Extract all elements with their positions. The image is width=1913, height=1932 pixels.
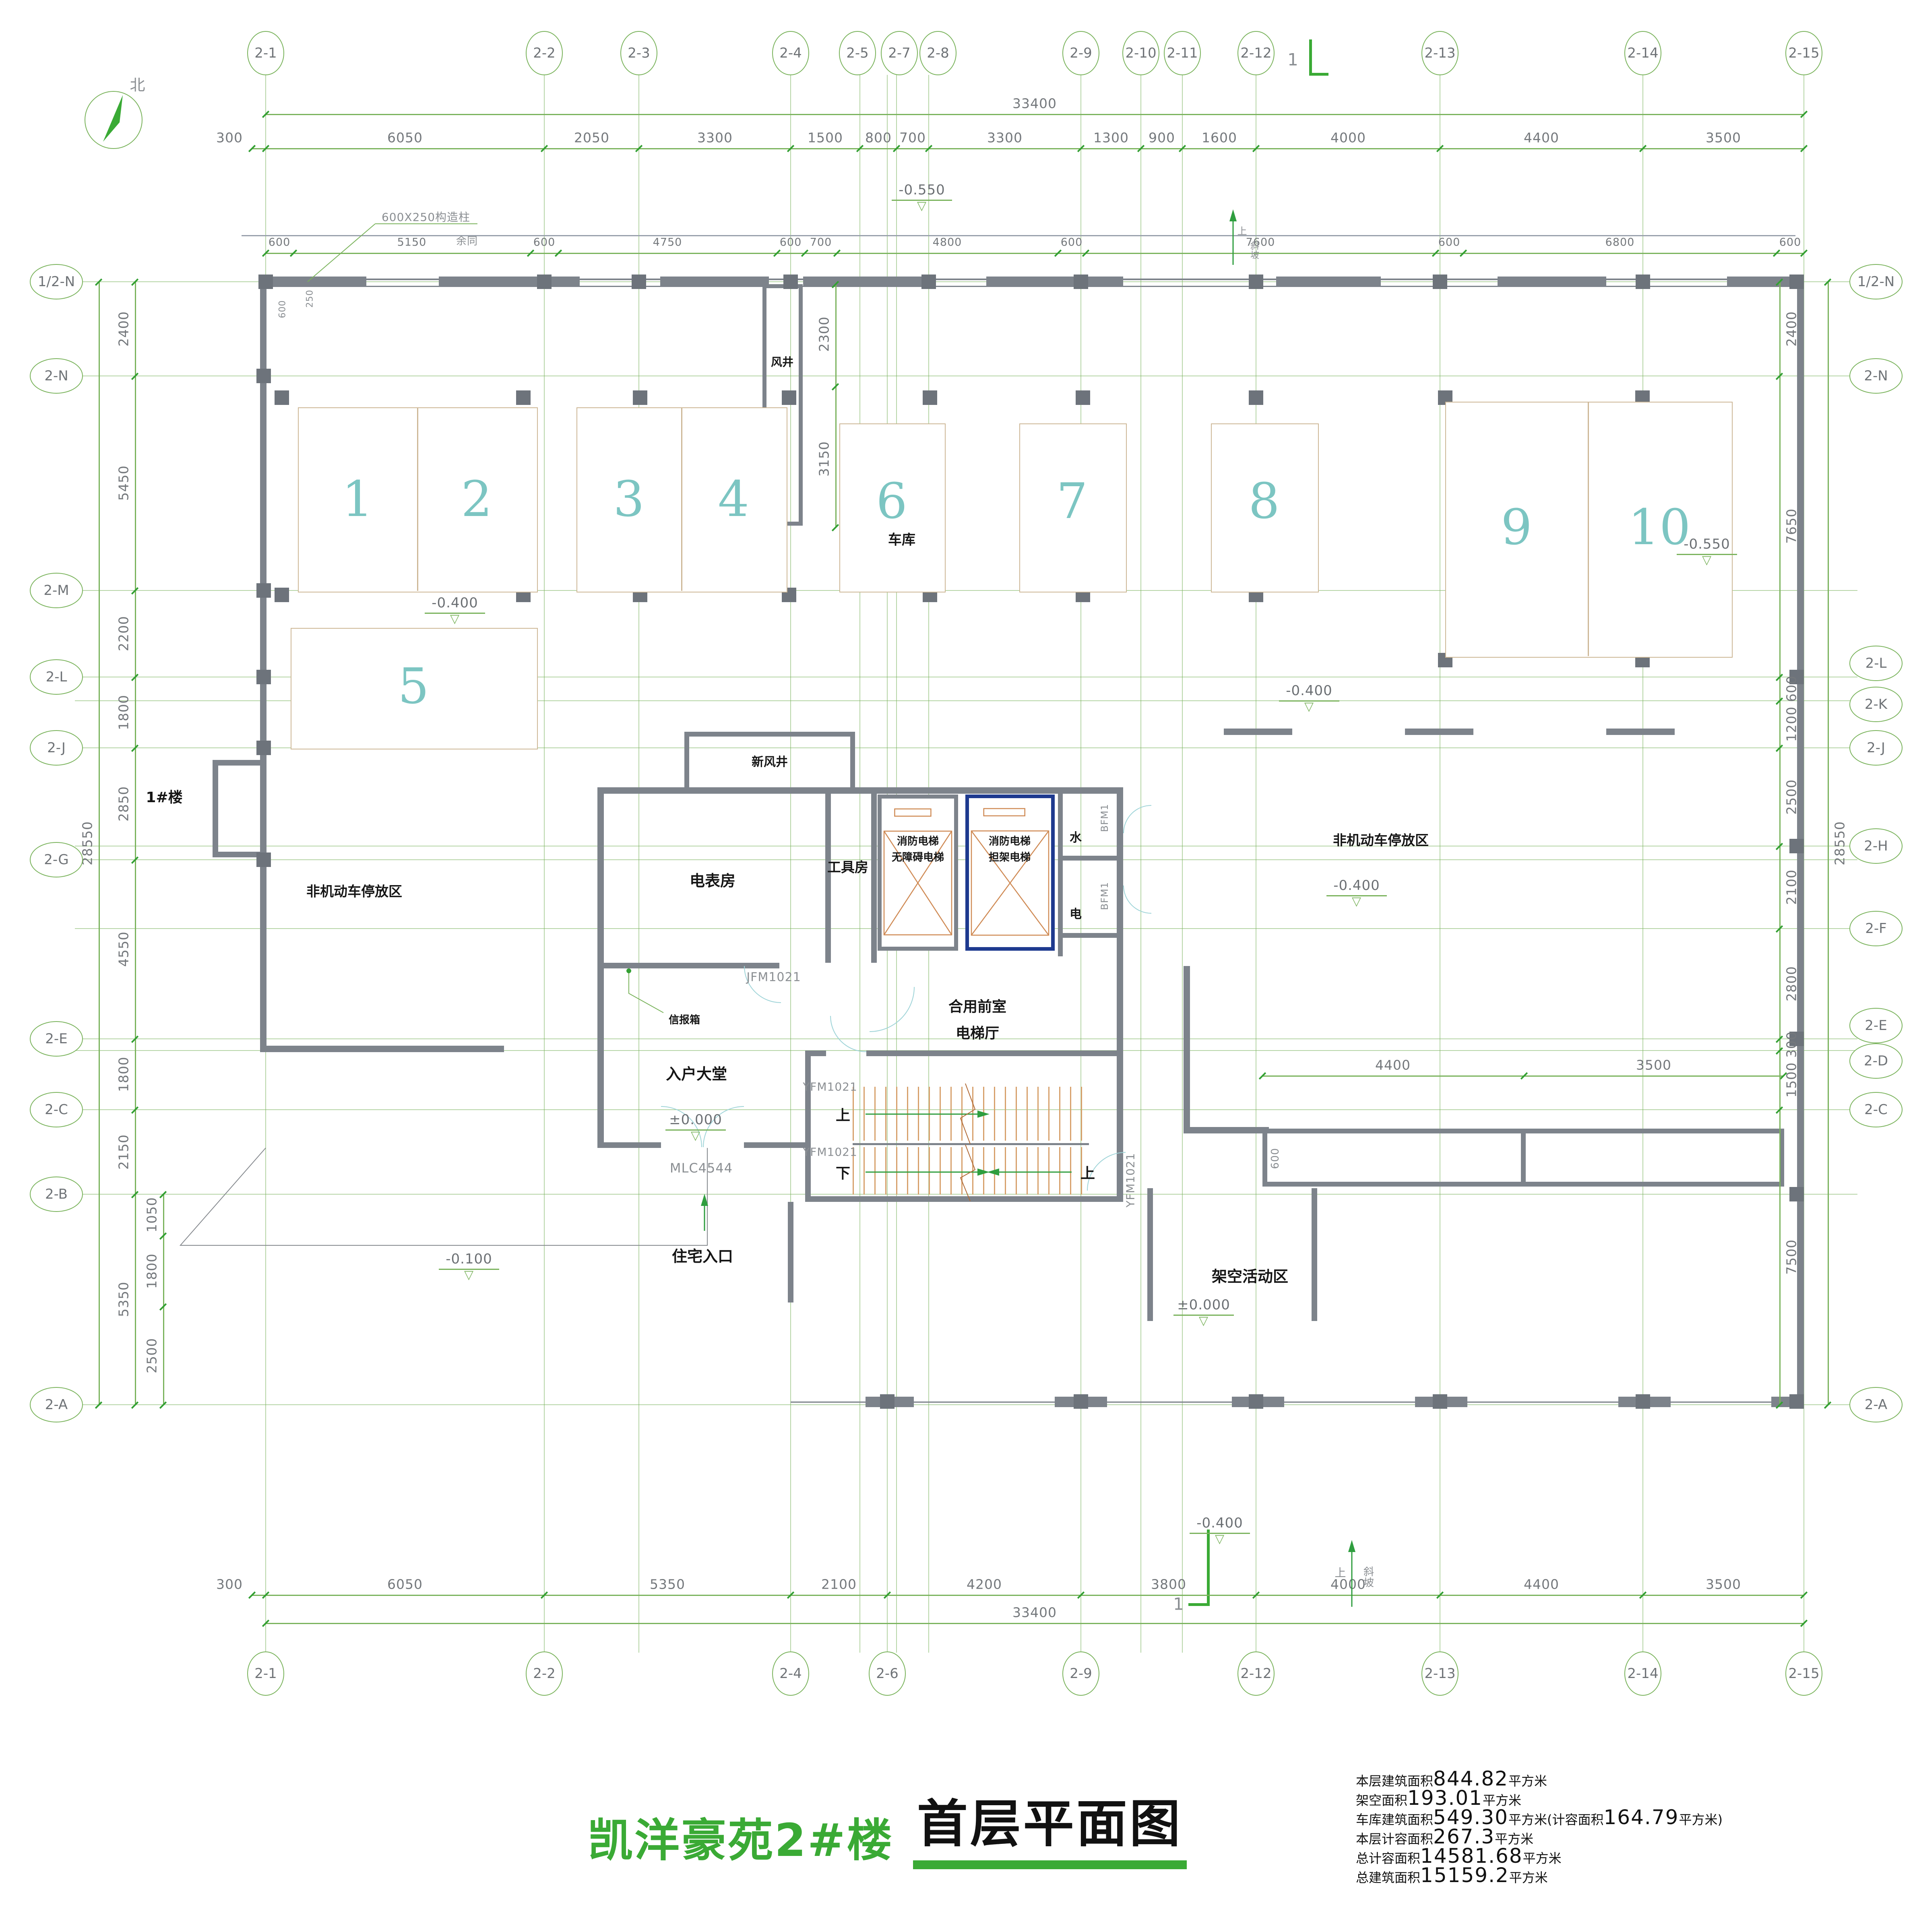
elevation-triangle-icon: ▽ [425, 614, 485, 624]
dimension-label: 2500 [144, 1338, 160, 1373]
grid-bubble-2-J: 2-J [30, 730, 83, 766]
grid-bubble-2-8: 2-8 [919, 31, 956, 75]
grid-bubble-2-N: 2-N [30, 358, 83, 394]
label-风井: 风井 [771, 353, 793, 369]
dimension-label: 2850 [116, 786, 132, 822]
section-mark-line [1188, 1603, 1210, 1606]
dimension-label: 5450 [116, 465, 132, 501]
stair-tread [994, 1147, 995, 1195]
wall-segment [850, 732, 855, 792]
stair-tread [874, 1087, 876, 1141]
grid-bubble-2-2: 2-2 [526, 1651, 563, 1696]
stair-tread [983, 1147, 984, 1195]
grid-bubble-2-13: 2-13 [1421, 1651, 1459, 1696]
structural-column [1636, 275, 1650, 289]
dimension-label: 2500 [1784, 779, 1799, 815]
grid-line-vertical [1080, 75, 1081, 1653]
label-YFM1021: YFM1021 [1124, 1153, 1137, 1207]
dimension-label: 1500 [808, 130, 843, 146]
stair-tread [896, 1087, 897, 1141]
structural-column [632, 275, 646, 289]
wall-segment [805, 1196, 1123, 1202]
structural-column [1789, 839, 1804, 853]
grid-bubble-2-K: 2-K [1849, 687, 1903, 722]
elevation-value: -0.100 [439, 1251, 499, 1267]
structural-column [1249, 1394, 1263, 1409]
stair-tread [972, 1147, 973, 1195]
dimension-label: 4000 [1330, 130, 1366, 146]
dimension-label: 300 [216, 130, 243, 146]
stat-unit: 平方米 [1508, 1771, 1547, 1790]
wall-segment [260, 282, 266, 1052]
wall-segment [1224, 729, 1292, 735]
grid-bubble-2-C: 2-C [30, 1092, 83, 1127]
structural-column [921, 275, 936, 289]
stat-line: 本层建筑面积844.82平方米 [1356, 1767, 1723, 1786]
grid-line-vertical [1140, 75, 1141, 1653]
grid-bubble-2-4: 2-4 [772, 31, 809, 75]
grid-bubble-2-J: 2-J [1849, 730, 1903, 766]
elevation-marker: -0.550▽ [1677, 536, 1737, 566]
dimension-label: 3150 [816, 441, 832, 477]
north-arrow [85, 91, 143, 149]
grid-line-horizontal [75, 1194, 1857, 1195]
grid-bubble-2-10: 2-10 [1122, 31, 1159, 75]
grid-bubble-2-12: 2-12 [1237, 1651, 1275, 1696]
dimension-label: 600 [533, 236, 556, 249]
elevation-triangle-icon: ▽ [1677, 555, 1737, 566]
label-1: 1 [1173, 1594, 1184, 1614]
stat-unit: 平方米( [1508, 1810, 1552, 1828]
stall-number-9: 9 [1501, 499, 1532, 556]
grid-bubble-2-4: 2-4 [772, 1651, 809, 1696]
grid-bubble-2-L: 2-L [1849, 646, 1903, 681]
structural-column [633, 390, 647, 405]
dimension-label: 300 [216, 1577, 243, 1592]
stair-tread [918, 1087, 919, 1141]
door-swing-arc [1123, 805, 1151, 833]
stat-label: 计容面积 [1552, 1810, 1603, 1828]
elevation-triangle-icon: ▽ [892, 201, 952, 211]
wall-segment [1521, 1129, 1526, 1187]
dimension-line [252, 1595, 1804, 1596]
stall-number-1: 1 [342, 471, 373, 528]
structural-column [1249, 390, 1263, 405]
dimension-label: 600 [1784, 675, 1799, 702]
stair-tread [1027, 1087, 1028, 1141]
dimension-line [99, 282, 100, 1405]
wall-segment [825, 794, 831, 963]
door-swing-arc [1123, 885, 1151, 914]
grid-bubble-2-2: 2-2 [526, 31, 563, 75]
grid-line-vertical [1256, 75, 1256, 1653]
dimension-label: 7500 [1784, 1239, 1799, 1275]
wall-segment [788, 1202, 793, 1302]
label-YFM1021: YFM1021 [803, 1146, 857, 1159]
grid-bubble-2-F: 2-F [1849, 911, 1903, 946]
wall-segment [597, 1142, 661, 1148]
stall-number-5: 5 [398, 658, 429, 715]
stair-tread [907, 1147, 908, 1195]
stair-tread [929, 1147, 930, 1195]
dimension-label: 1800 [116, 1057, 132, 1092]
door-swing-arc [830, 1016, 866, 1052]
dimension-label: 3500 [1706, 1577, 1741, 1592]
dimension-line [1779, 282, 1781, 1405]
dimension-label: 7650 [1784, 508, 1799, 544]
wall-segment [744, 1142, 806, 1148]
dimension-label: 3500 [1636, 1057, 1671, 1073]
wall-segment [660, 277, 769, 287]
wall-segment [597, 787, 1123, 794]
label-工具房: 工具房 [827, 857, 868, 876]
dimension-label: 3300 [697, 130, 733, 146]
wall-segment [1498, 277, 1606, 287]
parking-stall-divider [681, 407, 682, 591]
stat-unit: 平方米 [1509, 1868, 1548, 1886]
stat-value: 15159.2 [1420, 1864, 1509, 1887]
grid-bubble-2-L: 2-L [30, 659, 83, 695]
grid-line-vertical [1440, 75, 1440, 1653]
label-无障碍电梯: 无障碍电梯 [892, 849, 944, 864]
elevation-value: -0.400 [1326, 877, 1387, 894]
elevation-value: -0.400 [1190, 1515, 1250, 1531]
dimension-label: 600 [780, 236, 802, 249]
label-YFM1021: YFM1021 [803, 1080, 857, 1094]
elevation-marker: -0.400▽ [1190, 1515, 1250, 1544]
dimension-label: 5350 [116, 1282, 132, 1317]
project-title: 凯洋豪苑2#楼 [588, 1804, 894, 1869]
stair-tread [885, 1147, 886, 1195]
dimension-line [252, 148, 1804, 149]
structural-column [923, 390, 937, 405]
label-斜坡: 斜坡 [1247, 241, 1260, 260]
structural-column [256, 741, 271, 755]
dimension-label: 4800 [933, 236, 962, 249]
dimension-label: 4400 [1524, 130, 1559, 146]
structural-column [537, 275, 552, 289]
dimension-label: 28550 [1832, 821, 1848, 865]
elevation-marker: ±0.000▽ [665, 1112, 726, 1141]
grid-bubble-2-9: 2-9 [1062, 1651, 1099, 1696]
stat-label: 总计容面积 [1356, 1848, 1420, 1867]
stair-tread [1070, 1087, 1071, 1141]
structural-column [783, 275, 798, 289]
grid-bubble-2-M: 2-M [30, 573, 83, 608]
grid-bubble-2-H: 2-H [1849, 828, 1903, 864]
dimension-label: 33400 [1012, 96, 1057, 111]
wall-segment [1606, 729, 1675, 735]
grid-bubble-1/2-N: 1/2-N [1849, 264, 1903, 299]
grid-bubble-2-5: 2-5 [839, 31, 876, 75]
stall-number-6: 6 [876, 473, 907, 530]
label-下: 下 [836, 1162, 850, 1183]
label-1#楼: 1#楼 [146, 786, 182, 807]
grid-line-vertical [1182, 75, 1183, 1653]
grid-bubble-2-A: 2-A [30, 1387, 83, 1422]
label-非机动车停放区: 非机动车停放区 [306, 881, 402, 900]
stair-tread [1070, 1147, 1071, 1195]
stall-number-8: 8 [1248, 473, 1280, 530]
stair-tread [1027, 1147, 1028, 1195]
structural-column [1074, 275, 1088, 289]
stair-tread [961, 1147, 963, 1195]
elevation-marker: -0.100▽ [439, 1251, 499, 1280]
elevation-marker: -0.400▽ [1279, 683, 1339, 712]
label-合用前室: 合用前室 [948, 995, 1006, 1016]
stair-tread [929, 1087, 930, 1141]
dimension-line [266, 114, 1804, 115]
dimension-label: 4200 [967, 1577, 1002, 1592]
section-mark-line [1309, 73, 1328, 76]
dimension-label: 2300 [816, 316, 832, 352]
stair-tread [1037, 1147, 1039, 1195]
grid-bubble-2-13: 2-13 [1421, 31, 1459, 75]
wall-segment [986, 277, 1123, 287]
dimension-label: 4400 [1524, 1577, 1559, 1592]
structural-column [275, 390, 289, 405]
label-600: 600 [278, 300, 288, 318]
stair-tread [1037, 1087, 1039, 1141]
structural-column [1433, 1394, 1447, 1409]
grid-bubble-2-B: 2-B [30, 1177, 83, 1212]
label-斜坡: 斜坡 [1361, 1566, 1376, 1588]
grid-bubble-2-9: 2-9 [1062, 31, 1099, 75]
wall-segment [805, 1051, 811, 1202]
stat-value: 164.79 [1603, 1806, 1679, 1829]
elevator-stretcher-shaft [965, 795, 1055, 951]
stair-tread [972, 1087, 973, 1141]
wall-segment [213, 760, 218, 857]
structural-column [256, 852, 271, 867]
stall-number-7: 7 [1056, 473, 1088, 530]
label-上: 上 [1237, 223, 1248, 237]
wall-segment [213, 760, 266, 766]
label-非机动车停放区: 非机动车停放区 [1333, 830, 1429, 849]
grid-line-horizontal [75, 1404, 1857, 1405]
wall-segment [266, 277, 366, 287]
dimension-label: 800 [865, 130, 892, 146]
dimension-line [1828, 282, 1829, 1405]
elevation-value: ±0.000 [665, 1112, 726, 1128]
structural-column [782, 390, 796, 405]
dimension-label: 4750 [653, 236, 682, 249]
stat-label: 架空面积 [1356, 1790, 1407, 1809]
structural-column [1789, 275, 1804, 289]
stair-tread [1059, 1147, 1060, 1195]
stall-number-3: 3 [613, 471, 645, 528]
dimension-line [266, 1623, 1804, 1624]
wall-segment [1262, 1129, 1267, 1187]
elevation-value: ±0.000 [1173, 1297, 1234, 1313]
dimension-label: 600 [1438, 236, 1461, 249]
wall-segment [1147, 1188, 1153, 1321]
wall-segment [853, 1143, 1089, 1145]
label-上: 上 [836, 1104, 850, 1125]
stair-tread [1059, 1087, 1060, 1141]
grid-bubble-2-G: 2-G [30, 842, 83, 877]
elevator-accessible-shaft [878, 795, 958, 951]
label-BFM1: BFM1 [1099, 804, 1110, 832]
stair-tread [940, 1087, 941, 1141]
dimension-label: 700 [899, 130, 926, 146]
wall-segment [1058, 933, 1122, 938]
stair-tread [864, 1147, 865, 1195]
stall-number-2: 2 [461, 471, 492, 528]
label-1: 1 [1287, 50, 1299, 70]
dimension-label: 700 [810, 236, 832, 249]
wall-segment [799, 284, 803, 526]
label-BFM1: BFM1 [1099, 882, 1110, 910]
label-电梯厅: 电梯厅 [956, 1022, 999, 1042]
grid-bubble-2-E: 2-E [1849, 1008, 1903, 1043]
wall-segment [1184, 1127, 1269, 1133]
dimension-label: 4550 [116, 931, 132, 967]
stair-tread [1005, 1087, 1006, 1141]
label-车库: 车库 [888, 529, 915, 549]
dimension-line [266, 253, 1804, 254]
grid-bubble-1/2-N: 1/2-N [30, 264, 83, 299]
area-statistics: 本层建筑面积844.82平方米架空面积193.01平方米车库建筑面积549.30… [1356, 1767, 1723, 1883]
structural-column [1076, 390, 1090, 405]
parking-stall-divider [1588, 402, 1589, 656]
stair-tread [1048, 1087, 1049, 1141]
grid-bubble-2-A: 2-A [1849, 1387, 1903, 1422]
title-underline [913, 1860, 1187, 1869]
dimension-line [135, 282, 136, 1405]
dimension-label: 5150 [397, 236, 427, 249]
structural-column [1789, 1394, 1804, 1409]
label-消防电梯: 消防电梯 [897, 833, 939, 848]
structural-column [256, 670, 271, 684]
grid-line-horizontal [75, 376, 1857, 376]
label-电: 电 [1070, 904, 1082, 922]
door-swing-arc [870, 987, 915, 1032]
grid-bubble-2-3: 2-3 [620, 31, 657, 75]
section-mark-line [1309, 39, 1312, 76]
structural-column [1074, 1394, 1088, 1409]
dimension-label: 2150 [116, 1134, 132, 1170]
grid-bubble-2-7: 2-7 [881, 31, 918, 75]
structural-column [1249, 275, 1263, 289]
grid-bubble-2-11: 2-11 [1164, 31, 1201, 75]
stair-tread [1016, 1147, 1017, 1195]
label-600X250构造柱: 600X250构造柱 [382, 208, 470, 225]
stall-number-4: 4 [718, 471, 749, 528]
stair-tread [940, 1147, 941, 1195]
grid-bubble-2-14: 2-14 [1624, 31, 1661, 75]
label-250: 250 [305, 290, 315, 308]
stat-label: 车库建筑面积 [1356, 1810, 1433, 1828]
dimension-label: 2400 [1784, 311, 1799, 347]
label-住宅入口: 住宅入口 [672, 1244, 733, 1266]
elevation-triangle-icon: ▽ [439, 1270, 499, 1280]
label-600: 600 [1269, 1148, 1281, 1169]
wall-segment [803, 277, 932, 287]
dimension-label: 2200 [116, 616, 132, 651]
wall-segment [684, 732, 689, 792]
dimension-label: 1050 [144, 1197, 160, 1232]
dimension-label: 2800 [1784, 966, 1799, 1001]
label-上: 上 [1080, 1162, 1095, 1183]
structural-column [516, 390, 531, 405]
grid-line-vertical [544, 75, 545, 1653]
label-上: 上 [1335, 1564, 1346, 1580]
drawing-name: 首层平面图 [913, 1783, 1187, 1856]
grid-line-vertical [1642, 75, 1643, 1653]
label-消防电梯: 消防电梯 [989, 833, 1031, 848]
wall-segment [1312, 1188, 1317, 1321]
dimension-label: 600 [269, 236, 291, 249]
stair-tread [907, 1087, 908, 1141]
grid-bubble-2-N: 2-N [1849, 358, 1903, 394]
dimension-line [163, 1194, 164, 1405]
dimension-label: 3300 [987, 130, 1023, 146]
stair-tread [853, 1087, 854, 1141]
elevation-triangle-icon: ▽ [1326, 896, 1387, 907]
elevation-value: -0.550 [1677, 536, 1737, 552]
wall-segment [439, 277, 580, 287]
elevation-triangle-icon: ▽ [1190, 1534, 1250, 1544]
wall-segment [866, 1051, 1123, 1056]
structural-column [275, 588, 289, 602]
label-北: 北 [130, 73, 145, 95]
floor-plan-canvas: 12345678910 3340030060502050330015008007… [0, 0, 1913, 1932]
wall-segment [1117, 787, 1123, 1202]
dimension-label: 6050 [387, 1577, 423, 1592]
dimension-label: 6800 [1605, 236, 1635, 249]
structural-column [256, 369, 271, 383]
wall-segment [684, 732, 855, 737]
label-担架电梯: 担架电梯 [989, 849, 1031, 864]
elevation-marker: -0.550▽ [892, 182, 952, 211]
grid-bubble-2-1: 2-1 [247, 1651, 284, 1696]
dimension-label: 4400 [1375, 1057, 1411, 1073]
label-MLC4544: MLC4544 [670, 1160, 733, 1176]
label-入户大堂: 入户大堂 [666, 1062, 727, 1084]
grid-line-vertical [790, 75, 791, 1653]
wall-segment [1405, 729, 1473, 735]
wall-segment [1184, 966, 1190, 1133]
stair-tread [918, 1147, 919, 1195]
dimension-label: 1300 [1093, 130, 1129, 146]
label-余同: 余同 [456, 233, 478, 248]
grid-bubble-2-12: 2-12 [1237, 31, 1275, 75]
grid-bubble-2-15: 2-15 [1785, 1651, 1822, 1696]
dimension-label: 2050 [574, 130, 609, 146]
dimension-label: 2400 [116, 311, 132, 347]
label-新风井: 新风井 [752, 752, 788, 770]
dimension-label: 1200 [1784, 706, 1799, 742]
structural-column [880, 1394, 895, 1409]
elevation-value: -0.400 [425, 595, 485, 611]
dimension-label: 1800 [116, 695, 132, 730]
grid-line-horizontal [75, 1109, 1857, 1110]
dimension-label: 1800 [144, 1253, 160, 1289]
elevation-marker: -0.400▽ [1326, 877, 1387, 907]
elevation-marker: ±0.000▽ [1173, 1297, 1234, 1326]
dimension-line [835, 284, 837, 527]
elevation-triangle-icon: ▽ [1279, 702, 1339, 712]
grid-bubble-2-1: 2-1 [247, 31, 284, 75]
dimension-label: 2100 [1784, 869, 1799, 905]
label-JFM1021: JFM1021 [746, 970, 801, 985]
stat-unit: 平方米) [1679, 1810, 1723, 1828]
stair-tread [1048, 1147, 1049, 1195]
stat-unit: 平方米 [1523, 1848, 1562, 1867]
stair-tread [1081, 1087, 1082, 1141]
grid-bubble-2-14: 2-14 [1624, 1651, 1661, 1696]
